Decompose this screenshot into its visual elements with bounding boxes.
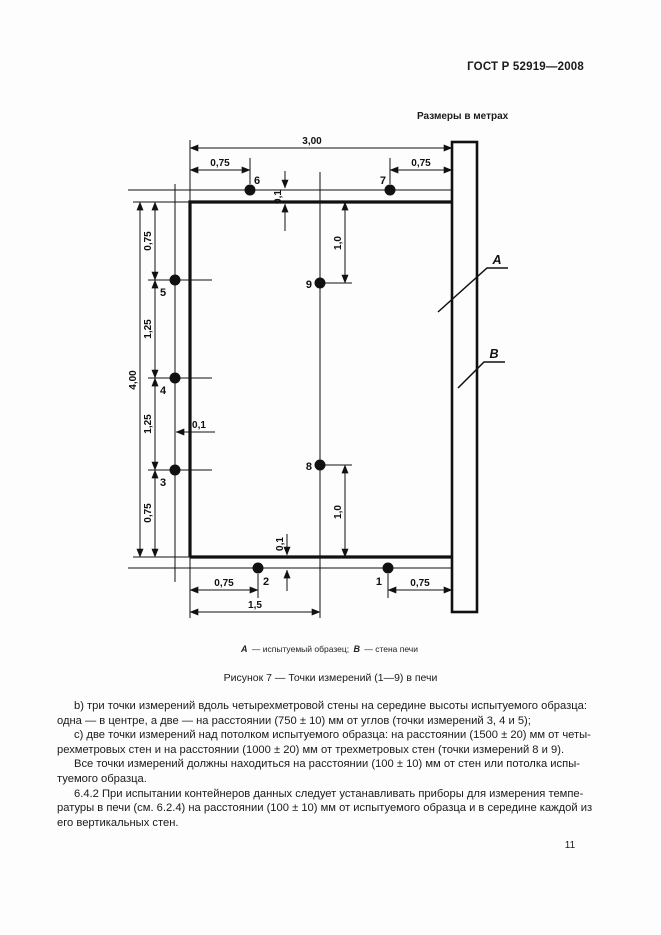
dim-label-offset-bottom: 0,1 [275, 537, 286, 551]
figure-caption: Рисунок 7 — Точки измерений (1—9) в печи [0, 672, 661, 684]
dim-label-width-top: 3,00 [302, 136, 322, 147]
point-4-dot [170, 373, 181, 384]
dim-label-offset-top: 0,1 [273, 190, 284, 204]
furnace-wall [452, 142, 477, 612]
body-line: Все точки измерений должны находиться на… [57, 757, 605, 772]
body-line: 6.4.2 При испытании контейнеров данных с… [57, 787, 605, 802]
point-9-dot [315, 278, 326, 289]
dim-label-corner-bottom-right: 0,75 [410, 578, 430, 589]
specimen-outline [190, 202, 452, 557]
page-number: 11 [559, 840, 581, 851]
dim-label-center-from-left: 1,5 [248, 600, 262, 611]
dim-label-seg-bottom: 0,75 [143, 503, 154, 523]
body-line: b) три точки измерений вдоль четырехметр… [57, 699, 605, 714]
point-2-label: 2 [263, 576, 269, 588]
dim-label-corner-top-right: 0,75 [411, 158, 431, 169]
legend-b-label: В [353, 644, 360, 654]
dim-label-mid-from-top: 1,0 [333, 236, 344, 250]
legend-a-text: — испытуемый образец; [252, 644, 349, 654]
point-1-dot [383, 563, 394, 574]
body-line: его вертикальных стен. [57, 816, 605, 831]
point-2-dot [253, 563, 264, 574]
dim-label-seg-top: 0,75 [143, 231, 154, 251]
measurement-points [170, 185, 396, 574]
point-6-label: 6 [254, 175, 260, 187]
dim-label-mid-from-bottom: 1,0 [333, 505, 344, 519]
body-line: ратуры в печи (см. 6.2.4) на расстоянии … [57, 801, 605, 816]
dimension-lines [140, 148, 452, 612]
point-8-dot [315, 460, 326, 471]
point-1-label: 1 [376, 576, 382, 588]
point-7-label: 7 [380, 175, 386, 187]
figure-legend: А — испытуемый образец; В — стена печи [0, 644, 661, 654]
legend-b-text: — стена печи [364, 644, 418, 654]
body-text: b) три точки измерений вдоль четырехметр… [57, 699, 605, 830]
callout-a-label: А [491, 253, 501, 267]
body-line: одна — в центре, а две — на расстоянии (… [57, 714, 605, 729]
document-page: ГОСТ Р 52919—2008 Размеры в метрах [0, 0, 661, 935]
point-3-label: 3 [160, 477, 166, 489]
body-line: туемого образца. [57, 772, 605, 787]
body-line: c) две точки измерений над потолком испы… [57, 728, 605, 743]
point-7-dot [385, 185, 396, 196]
point-9-label: 9 [306, 279, 312, 291]
body-line: рехметровых стен и на расстоянии (1000 ±… [57, 743, 605, 758]
dim-label-seg-mid1: 1,25 [143, 319, 154, 339]
dim-label-seg-mid2: 1,25 [143, 414, 154, 434]
point-8-label: 8 [306, 461, 312, 473]
dim-label-corner-bottom-left: 0,75 [214, 578, 234, 589]
dim-label-corner-top-left: 0,75 [210, 158, 230, 169]
dim-label-offset-left: 0,1 [192, 420, 206, 431]
dim-label-height-left: 4,00 [128, 370, 139, 390]
point-5-dot [170, 275, 181, 286]
callout-b-label: В [489, 347, 498, 361]
legend-a-label: А [241, 644, 248, 654]
point-4-label: 4 [160, 385, 167, 397]
point-5-label: 5 [160, 287, 166, 299]
point-3-dot [170, 465, 181, 476]
figure-7-drawing: 6 7 5 4 3 9 8 2 1 3,00 0,75 0,75 0,1 0,7… [0, 0, 661, 640]
